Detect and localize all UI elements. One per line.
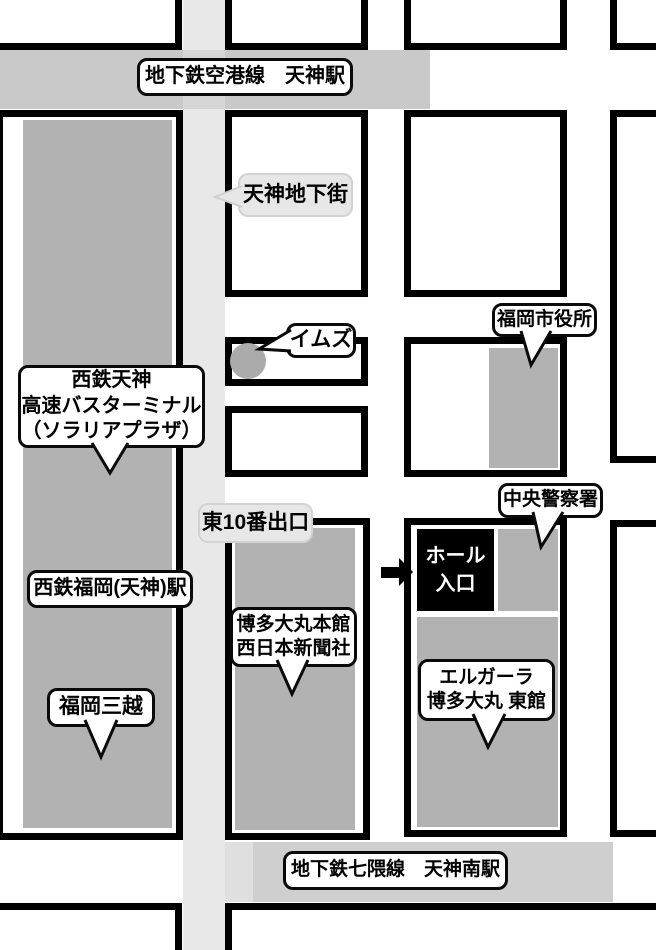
block-top-b [225, 0, 368, 50]
callout-bus-terminal-line2: 高速バスターミナル [22, 394, 202, 420]
callout-elgala-line1: エルガーラ [439, 666, 533, 690]
block-bottom-left [0, 903, 182, 950]
hall-entrance-line2: 入口 [436, 570, 476, 598]
callout-city-hall-text: 福岡市役所 [497, 308, 592, 332]
building-daimaru [235, 528, 355, 830]
callout-daimaru: 博多大丸本館 西日本新聞社 [230, 607, 357, 667]
tenjin-area-map: ホール 入口 地下鉄空港線 天神駅 天神地下街 イムズ 福岡市役所 西鉄天神 高… [0, 0, 656, 950]
callout-mitsukoshi: 福岡三越 [47, 688, 155, 727]
callout-nishitetsu-station: 西鉄福岡(天神)駅 [27, 570, 193, 608]
label-subway-airport-line: 地下鉄空港線 天神駅 [137, 58, 353, 96]
label-subway-nanakuma-line-text: 地下鉄七隈線 天神南駅 [291, 858, 500, 882]
block-c2 [404, 110, 567, 297]
callout-exit-east10: 東10番出口 [198, 503, 313, 543]
callout-bus-terminal: 西鉄天神 高速バスターミナル （ソラリアプラザ） [18, 365, 205, 448]
callout-central-police: 中央警察署 [498, 483, 603, 518]
callout-ims-text: イムズ [290, 327, 353, 354]
block-top-left [0, 0, 182, 50]
callout-tenjin-chikagai: 天神地下街 [238, 173, 353, 217]
building-city-hall [489, 348, 558, 468]
block-bottom-right [225, 903, 656, 950]
callout-tenjin-chikagai-text: 天神地下街 [243, 182, 348, 209]
callout-elgala: エルガーラ 博多大丸 東館 [418, 659, 555, 721]
callout-bus-terminal-line3: （ソラリアプラザ） [22, 419, 202, 445]
vertical-street [183, 0, 225, 950]
building-beside-hall-entrance [498, 529, 558, 611]
callout-bus-terminal-line1: 西鉄天神 [72, 368, 152, 394]
ims-circle-marker [230, 343, 266, 379]
callout-exit-east10-text: 東10番出口 [202, 510, 309, 537]
block-b4 [225, 406, 368, 477]
callout-city-hall: 福岡市役所 [492, 303, 597, 337]
hall-entrance-line1: ホール [426, 542, 486, 570]
label-subway-nanakuma-line: 地下鉄七隈線 天神南駅 [283, 851, 508, 890]
block-top-c [404, 0, 567, 50]
callout-mitsukoshi-text: 福岡三越 [59, 694, 143, 721]
callout-ims: イムズ [286, 323, 356, 358]
block-d2 [610, 110, 656, 463]
block-d4 [610, 520, 656, 837]
callout-daimaru-line1: 博多大丸本館 [236, 613, 350, 637]
callout-nishitetsu-station-text: 西鉄福岡(天神)駅 [33, 576, 186, 602]
building-elgala [417, 617, 558, 827]
hall-entrance-box: ホール 入口 [417, 529, 494, 611]
subway-nanakuma-line-band-light-edge [225, 842, 253, 902]
callout-central-police-text: 中央警察署 [503, 488, 598, 512]
callout-daimaru-line2: 西日本新聞社 [236, 637, 350, 661]
block-top-right [610, 0, 656, 50]
callout-elgala-line2: 博多大丸 東館 [427, 690, 546, 714]
label-subway-airport-line-text: 地下鉄空港線 天神駅 [145, 64, 345, 90]
